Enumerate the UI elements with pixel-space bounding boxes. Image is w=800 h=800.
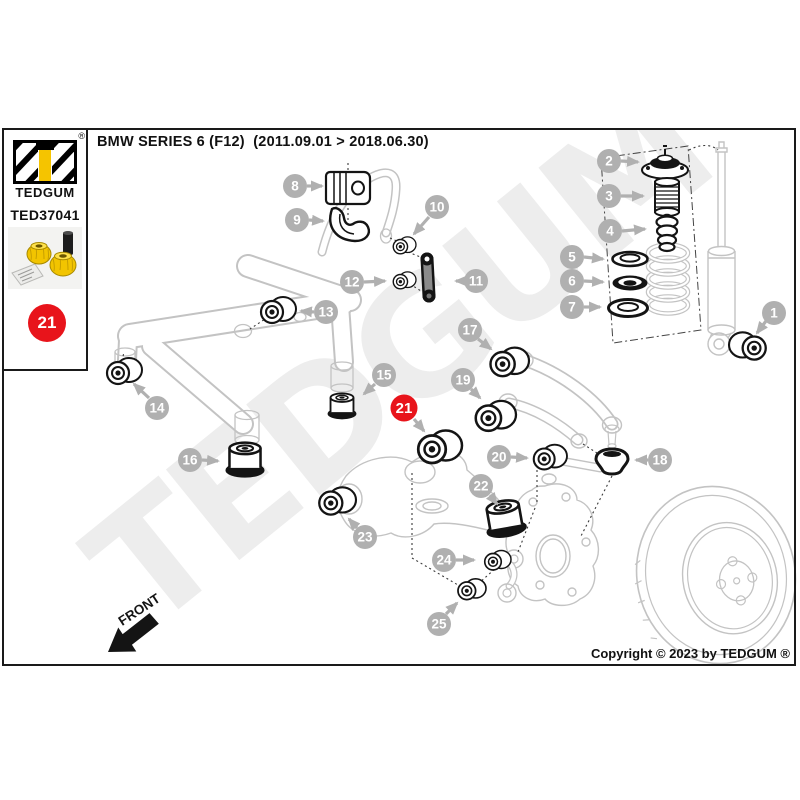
registered-trademark: ® xyxy=(78,131,85,141)
link-bushing-25 xyxy=(458,579,486,600)
svg-text:2: 2 xyxy=(605,154,613,169)
shock-absorber xyxy=(708,142,735,355)
position-badge: 21 xyxy=(28,304,66,342)
yellow-bushing-left xyxy=(27,243,51,265)
callout-19: 19 xyxy=(451,368,480,398)
shock-boot xyxy=(655,178,679,216)
stabilizer-link xyxy=(421,253,436,303)
brand-panel: ® TEDGUM TED37041 xyxy=(2,128,88,371)
exploded-suspension-diagram: 1 2 3 4 5 6 7 8 9 10 11 12 13 14 15 16 1… xyxy=(0,0,800,800)
svg-text:1: 1 xyxy=(770,306,778,321)
tedgum-logo-icon xyxy=(13,140,77,184)
callout-9: 9 xyxy=(285,208,323,232)
arm-bushing-23 xyxy=(319,487,356,514)
link-nut-lower xyxy=(393,272,416,289)
coil-spring xyxy=(648,245,688,314)
svg-text:18: 18 xyxy=(652,453,668,468)
arm-bushing-17 xyxy=(491,348,530,377)
svg-text:4: 4 xyxy=(606,224,614,239)
subframe-bushing-16 xyxy=(226,443,264,478)
spring-ring-upper xyxy=(613,252,648,266)
callout-21-highlighted: 21 xyxy=(391,395,425,432)
link-nut-upper xyxy=(393,237,416,254)
callout-1: 1 xyxy=(757,301,786,333)
tedgum-logo-wordmark: TEDGUM xyxy=(4,185,86,200)
subframe-bushing-14 xyxy=(107,358,142,384)
spring-bearing xyxy=(613,276,648,291)
callout-24: 24 xyxy=(432,548,474,572)
callout-3: 3 xyxy=(597,184,643,208)
callout-4: 4 xyxy=(598,219,645,243)
callout-20: 20 xyxy=(487,445,527,469)
svg-text:5: 5 xyxy=(568,250,576,265)
svg-text:22: 22 xyxy=(473,479,488,494)
svg-text:24: 24 xyxy=(436,553,452,568)
svg-text:14: 14 xyxy=(149,401,165,416)
link-bushing-24 xyxy=(485,551,511,571)
stabilizer-bushing-block xyxy=(326,172,370,204)
svg-text:11: 11 xyxy=(469,274,484,289)
svg-text:13: 13 xyxy=(318,305,334,320)
svg-text:9: 9 xyxy=(293,213,301,228)
callout-11: 11 xyxy=(456,269,488,293)
svg-text:3: 3 xyxy=(605,189,613,204)
stabilizer-bracket xyxy=(330,208,369,241)
product-photo xyxy=(8,227,82,289)
toe-link-bushing-20 xyxy=(534,445,567,470)
callout-10: 10 xyxy=(414,195,449,234)
svg-text:7: 7 xyxy=(568,300,576,315)
strut-top-mount xyxy=(642,146,688,179)
callout-14: 14 xyxy=(134,384,169,420)
parts-diagram-image: TEDGUM xyxy=(0,0,800,800)
copyright-notice: Copyright © 2023 by TEDGUM ® xyxy=(591,646,790,661)
svg-text:23: 23 xyxy=(357,530,373,545)
svg-text:12: 12 xyxy=(344,275,359,290)
callout-18: 18 xyxy=(636,448,672,472)
callout-8: 8 xyxy=(283,174,322,198)
callout-7: 7 xyxy=(560,295,600,319)
svg-text:20: 20 xyxy=(491,450,506,465)
black-sleeve xyxy=(63,231,73,255)
shock-eye-bushing xyxy=(729,332,766,359)
svg-text:21: 21 xyxy=(396,400,413,417)
arm-bushing-19 xyxy=(476,401,516,431)
highlighted-bushing-21 xyxy=(418,431,462,464)
svg-text:6: 6 xyxy=(568,274,576,289)
page-title: BMW SERIES 6 (F12) (2011.09.01 > 2018.06… xyxy=(97,134,429,150)
callout-6: 6 xyxy=(560,269,603,293)
svg-text:10: 10 xyxy=(429,200,444,215)
svg-text:8: 8 xyxy=(291,179,299,194)
bump-stop xyxy=(657,214,678,251)
front-direction-arrow: FRONT xyxy=(94,590,178,664)
spring-pad-lower xyxy=(609,300,648,317)
wheel-hub-knuckle xyxy=(506,474,598,605)
svg-text:25: 25 xyxy=(431,617,447,632)
callout-5: 5 xyxy=(560,245,603,269)
svg-text:15: 15 xyxy=(376,368,392,383)
part-number: TED37041 xyxy=(4,207,86,223)
callout-15: 15 xyxy=(364,363,396,394)
callout-25: 25 xyxy=(427,603,457,636)
svg-text:19: 19 xyxy=(455,373,470,388)
callout-12: 12 xyxy=(340,270,385,294)
svg-text:17: 17 xyxy=(462,323,477,338)
subframe-bushing-15 xyxy=(328,393,356,419)
svg-text:16: 16 xyxy=(182,453,198,468)
callout-16: 16 xyxy=(178,448,218,472)
callout-17: 17 xyxy=(458,318,491,349)
callout-2: 2 xyxy=(597,149,638,173)
subframe-bushing-13 xyxy=(261,297,296,323)
